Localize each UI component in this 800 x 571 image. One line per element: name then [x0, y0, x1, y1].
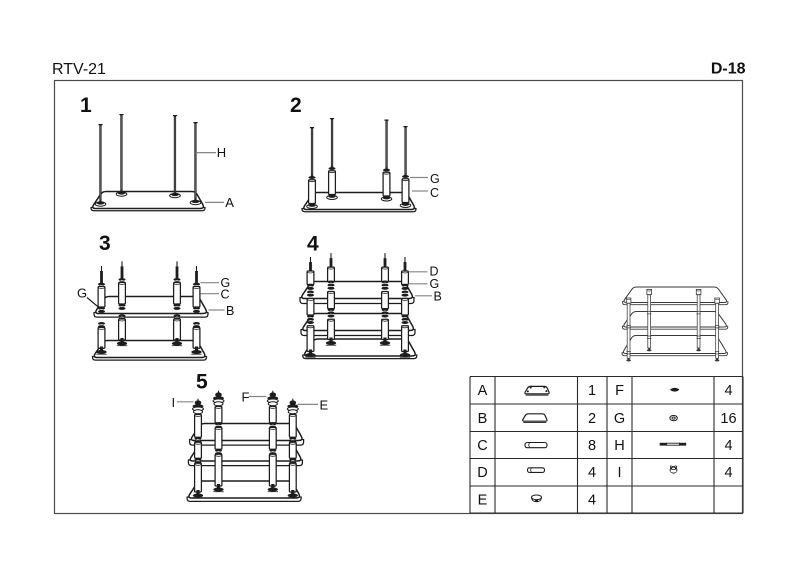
svg-text:2: 2: [290, 94, 302, 117]
svg-text:8: 8: [588, 438, 596, 454]
svg-text:2: 2: [588, 411, 596, 427]
svg-text:E: E: [478, 493, 488, 509]
svg-text:B: B: [434, 290, 442, 304]
svg-text:H: H: [217, 145, 226, 160]
svg-text:16: 16: [720, 411, 736, 427]
svg-text:I: I: [172, 395, 176, 410]
svg-text:4: 4: [307, 233, 319, 256]
svg-text:F: F: [242, 390, 250, 405]
svg-text:G: G: [77, 286, 87, 301]
svg-text:I: I: [617, 465, 621, 481]
svg-text:E: E: [320, 398, 329, 413]
svg-text:4: 4: [724, 465, 732, 481]
svg-text:H: H: [614, 438, 624, 454]
svg-text:G: G: [430, 172, 440, 186]
svg-text:4: 4: [588, 493, 596, 509]
svg-text:RTV-21: RTV-21: [52, 61, 106, 78]
svg-text:D: D: [477, 465, 487, 481]
svg-text:5: 5: [196, 371, 208, 394]
svg-text:D-18: D-18: [711, 61, 746, 78]
svg-text:3: 3: [99, 232, 111, 255]
svg-text:1: 1: [588, 383, 596, 399]
svg-text:A: A: [478, 383, 488, 399]
svg-text:A: A: [225, 195, 234, 210]
svg-text:C: C: [221, 288, 230, 302]
svg-text:B: B: [478, 411, 488, 427]
svg-text:4: 4: [588, 465, 596, 481]
svg-text:4: 4: [724, 383, 732, 399]
svg-text:C: C: [477, 438, 487, 454]
svg-text:B: B: [226, 304, 234, 318]
svg-text:1: 1: [80, 94, 92, 117]
svg-text:4: 4: [724, 438, 732, 454]
svg-text:C: C: [430, 186, 439, 200]
svg-text:G: G: [614, 411, 625, 427]
svg-text:F: F: [615, 383, 624, 399]
